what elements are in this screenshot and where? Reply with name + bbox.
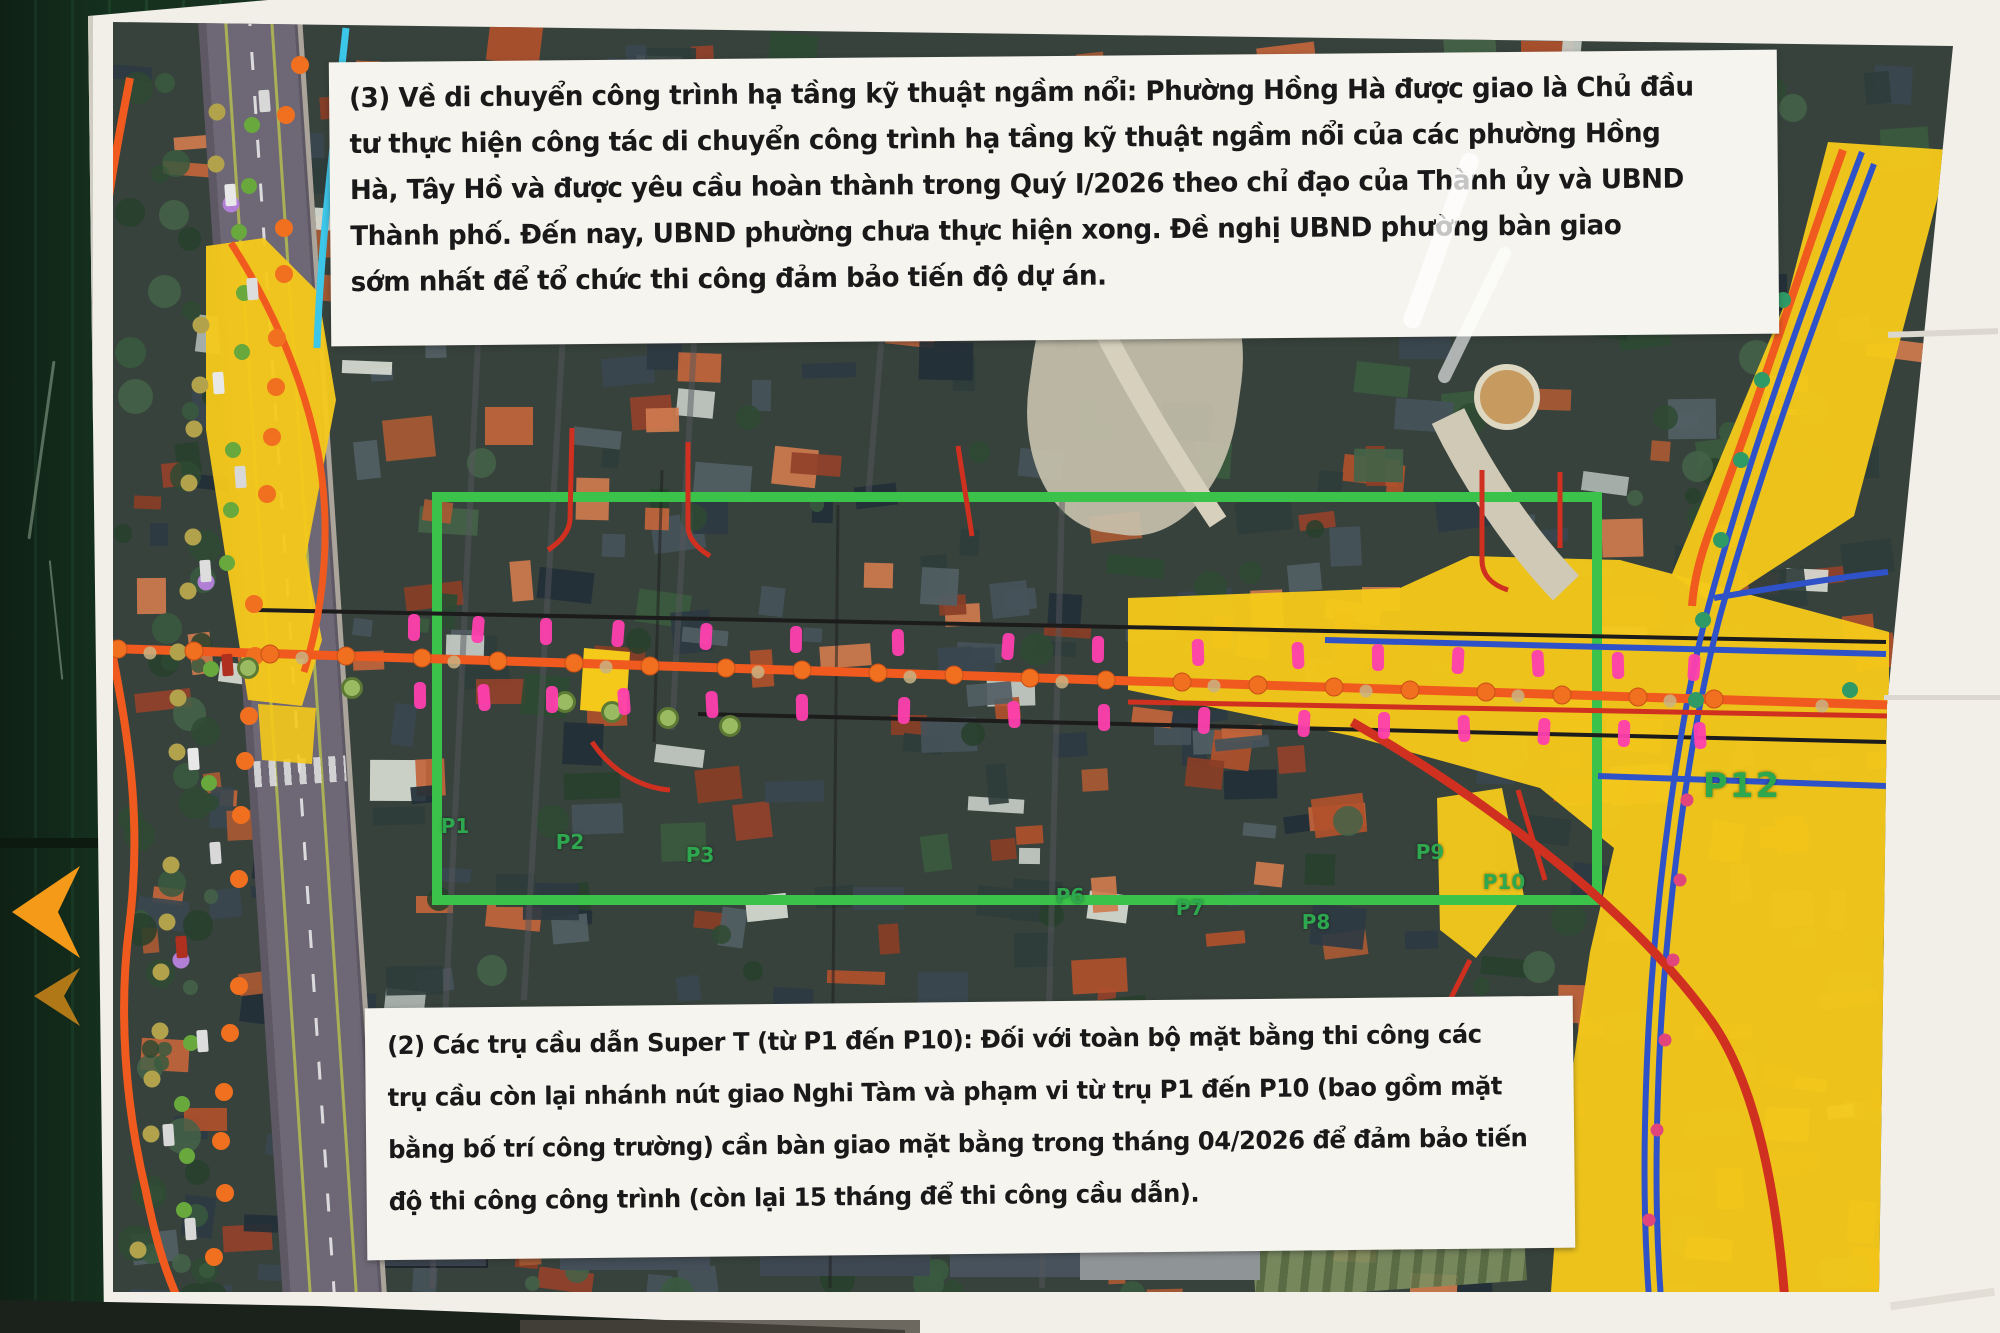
survey-dot-olive — [180, 582, 197, 599]
pier-marker — [1612, 652, 1625, 679]
alignment-dot — [1553, 685, 1572, 704]
alignment-dot — [717, 659, 736, 678]
paper-crease — [1884, 695, 2000, 700]
survey-dot-orange — [268, 329, 286, 347]
note-line: độ thi công công trình (còn lại 15 tháng… — [388, 1164, 1518, 1228]
alignment-dot — [565, 654, 584, 673]
survey-dot-olive — [169, 690, 186, 707]
pier-marker — [477, 684, 491, 712]
pier-marker — [796, 694, 808, 721]
car — [224, 184, 237, 207]
ring-dot — [237, 657, 259, 679]
pier-marker — [898, 697, 911, 724]
alignment-dot-tan — [1664, 694, 1677, 707]
curve-dot-red — [1667, 954, 1680, 967]
pier-marker — [1192, 639, 1205, 666]
curve-dot-red — [1681, 794, 1694, 807]
car — [221, 654, 234, 677]
pier-marker — [1291, 642, 1304, 670]
alignment-dot — [1021, 668, 1040, 687]
survey-dot-green — [244, 117, 260, 133]
pier-marker — [1531, 649, 1545, 677]
survey-dot-green — [201, 775, 217, 791]
survey-dot-green — [179, 1148, 195, 1164]
car — [209, 842, 222, 865]
curve-dot-red — [1674, 874, 1687, 887]
survey-dot-orange — [215, 1083, 233, 1101]
survey-dot-orange — [230, 977, 248, 995]
survey-dot-orange — [205, 1248, 223, 1266]
survey-dot-olive — [159, 914, 176, 931]
pier-label-p12: P12 — [1703, 766, 1781, 806]
survey-dot-green — [174, 1096, 190, 1112]
car — [162, 1124, 175, 1147]
survey-dot-olive — [180, 475, 197, 492]
pier-label-p3: P3 — [686, 843, 715, 867]
pier-marker — [1001, 632, 1015, 660]
alignment-dot — [185, 642, 204, 661]
note-2-text-block: (2) Các trụ cầu dẫn Super T (từ P1 đến P… — [365, 996, 1576, 1261]
pier-marker — [1297, 710, 1310, 738]
curve-dot-red — [1643, 1214, 1656, 1227]
alignment-dot-tan — [1056, 675, 1069, 688]
survey-dot-olive — [185, 420, 202, 437]
pier-marker — [1687, 654, 1701, 682]
car — [200, 560, 213, 583]
survey-dot-orange — [267, 378, 285, 396]
pier-marker — [471, 616, 485, 644]
alignment-dot-tan — [1512, 690, 1525, 703]
curve-dot-red — [1636, 1294, 1649, 1307]
car — [246, 278, 259, 301]
alignment-dot — [1249, 675, 1268, 694]
pier-label-p2: P2 — [556, 830, 585, 854]
alignment-dot-tan — [752, 666, 765, 679]
survey-dot-olive — [153, 964, 170, 981]
pier-marker — [1098, 704, 1110, 731]
car — [212, 372, 225, 395]
survey-dot-olive — [169, 744, 186, 761]
pier-marker — [1198, 707, 1211, 734]
alignment-dot — [1173, 673, 1192, 692]
survey-dot-olive — [143, 1125, 160, 1142]
car — [184, 1218, 197, 1241]
alignment-dot-tan — [1208, 680, 1221, 693]
alignment-dot — [261, 644, 280, 663]
alignment-dot-tan — [448, 656, 461, 669]
alignment-dot — [1629, 687, 1648, 706]
pier-label-p1: P1 — [441, 814, 470, 838]
curve-dot-red — [1659, 1034, 1672, 1047]
car — [234, 466, 247, 489]
survey-dot-orange — [212, 1132, 230, 1150]
pier-marker — [892, 629, 905, 656]
survey-dot-green — [234, 344, 250, 360]
survey-dot-olive — [185, 529, 202, 546]
curve-dot-teal — [1695, 612, 1711, 628]
alignment-dot — [413, 649, 432, 668]
survey-dot-orange — [275, 265, 293, 283]
survey-dot-orange — [275, 219, 293, 237]
alignment-dot-tan — [1360, 685, 1373, 698]
survey-dot-orange — [230, 870, 248, 888]
curve-dot-teal — [1842, 682, 1858, 698]
map-building-tile — [1884, 983, 1937, 1026]
curve-dot-red — [1651, 1124, 1664, 1137]
pier-marker — [699, 623, 712, 651]
pier-marker — [1451, 647, 1464, 675]
pier-marker — [1457, 715, 1470, 743]
curve-dot-teal — [1733, 452, 1749, 468]
survey-dot-orange — [263, 428, 281, 446]
alignment-dot-tan — [600, 661, 613, 674]
alignment-dot-tan — [144, 646, 157, 659]
alignment-dot — [1705, 690, 1724, 709]
survey-dot-orange — [258, 485, 276, 503]
pier-marker — [1092, 636, 1104, 663]
survey-dot-olive — [144, 1071, 161, 1088]
survey-dot-green — [225, 442, 241, 458]
car — [259, 90, 272, 113]
pier-marker — [1007, 700, 1021, 728]
pier-marker — [1372, 644, 1384, 671]
ground-shadow-strip — [520, 1320, 920, 1333]
survey-dot-green — [241, 178, 257, 194]
alignment-dot — [793, 661, 812, 680]
survey-dot-orange — [240, 707, 258, 725]
survey-dot-olive — [162, 856, 179, 873]
survey-dot-green — [231, 224, 247, 240]
ring-dot — [341, 677, 363, 699]
survey-dot-green — [176, 1202, 192, 1218]
pier-marker — [1618, 720, 1631, 747]
survey-dot-orange — [236, 752, 254, 770]
survey-dot-orange — [245, 595, 263, 613]
survey-dot-green — [219, 555, 235, 571]
survey-dot-olive — [130, 1241, 147, 1258]
survey-dot-orange — [291, 56, 309, 74]
pier-marker — [1378, 712, 1390, 739]
alignment-dot — [1401, 680, 1420, 699]
car — [197, 1030, 210, 1053]
pier-marker — [546, 686, 558, 713]
ring-dot — [719, 715, 741, 737]
note-3-text-block: (3) Về di chuyển công trình hạ tầng kỹ t… — [329, 50, 1779, 347]
survey-dot-orange — [232, 806, 250, 824]
pier-marker — [408, 614, 420, 641]
survey-dot-green — [223, 502, 239, 518]
pier-marker — [617, 688, 631, 716]
pier-label-p8: P8 — [1302, 910, 1331, 934]
survey-dot-orange — [221, 1024, 239, 1042]
alignment-dot — [869, 663, 888, 682]
paper-crease — [1890, 1288, 1995, 1311]
curve-dot-teal — [1754, 372, 1770, 388]
survey-dot-olive — [208, 156, 225, 173]
survey-dot-olive — [191, 377, 208, 394]
photo-of-construction-plan-poster: P1P2P3P6P7P8P9P10P12 (3) Về di chuyển cô… — [0, 0, 2000, 1333]
survey-dot-orange — [216, 1184, 234, 1202]
alignment-dot — [489, 651, 508, 670]
alignment-dot — [641, 656, 660, 675]
alignment-dot — [1097, 671, 1116, 690]
car — [175, 936, 188, 959]
survey-dot-orange — [277, 106, 295, 124]
pier-marker — [1693, 722, 1707, 750]
map-building-tile — [1885, 912, 1904, 933]
pier-marker — [611, 620, 625, 648]
pier-label-p7: P7 — [1176, 896, 1205, 920]
map-building-tile — [1147, 1289, 1184, 1314]
pier-marker — [414, 682, 426, 709]
curve-dot-teal — [1688, 692, 1704, 708]
alignment-dot-tan — [296, 651, 309, 664]
survey-dot-olive — [208, 104, 225, 121]
pier-marker — [540, 618, 552, 645]
survey-dot-olive — [152, 1023, 169, 1040]
car — [187, 748, 200, 771]
survey-dot-olive — [192, 316, 209, 333]
pier-label-p10: P10 — [1483, 870, 1526, 894]
pier-marker — [705, 691, 718, 719]
alignment-dot-tan — [904, 670, 917, 683]
alignment-dot — [945, 666, 964, 685]
poster-paper: P1P2P3P6P7P8P9P10P12 (3) Về di chuyển cô… — [0, 0, 2000, 1333]
alignment-dot — [1325, 678, 1344, 697]
alignment-dot — [1477, 683, 1496, 702]
pier-label-p6: P6 — [1056, 884, 1085, 908]
alignment-dot — [109, 639, 128, 658]
survey-dot-green — [203, 661, 219, 677]
pier-marker — [790, 626, 802, 653]
alignment-dot — [337, 646, 356, 665]
pier-label-p9: P9 — [1416, 840, 1445, 864]
pier-marker — [1537, 717, 1551, 745]
curve-dot-teal — [1713, 532, 1729, 548]
alignment-dot-tan — [1816, 699, 1829, 712]
ring-dot — [657, 707, 679, 729]
